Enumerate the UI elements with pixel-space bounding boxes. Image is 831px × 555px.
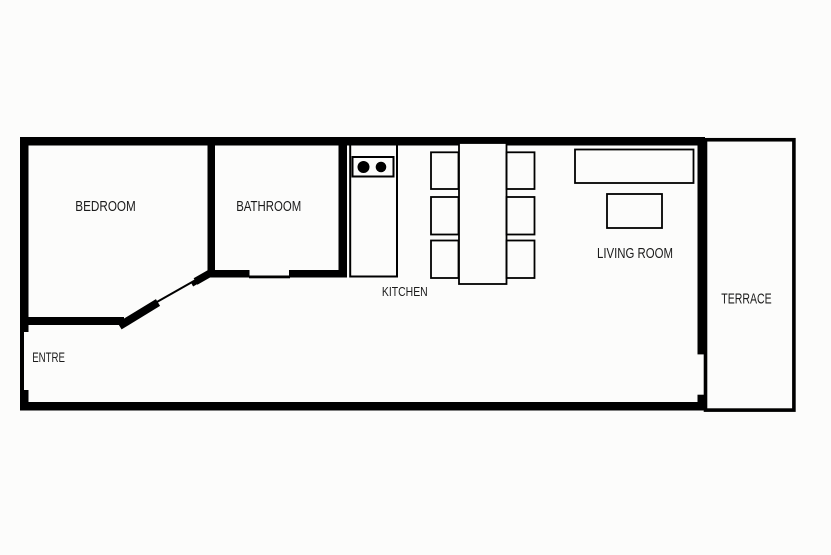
svg-text:KITCHEN: KITCHEN bbox=[382, 284, 428, 299]
svg-text:ENTRE: ENTRE bbox=[32, 349, 65, 365]
svg-text:BEDROOM: BEDROOM bbox=[75, 198, 136, 215]
svg-text:BATHROOM: BATHROOM bbox=[236, 198, 301, 215]
svg-text:LIVING ROOM: LIVING ROOM bbox=[597, 245, 673, 262]
svg-text:TERRACE: TERRACE bbox=[721, 292, 772, 308]
